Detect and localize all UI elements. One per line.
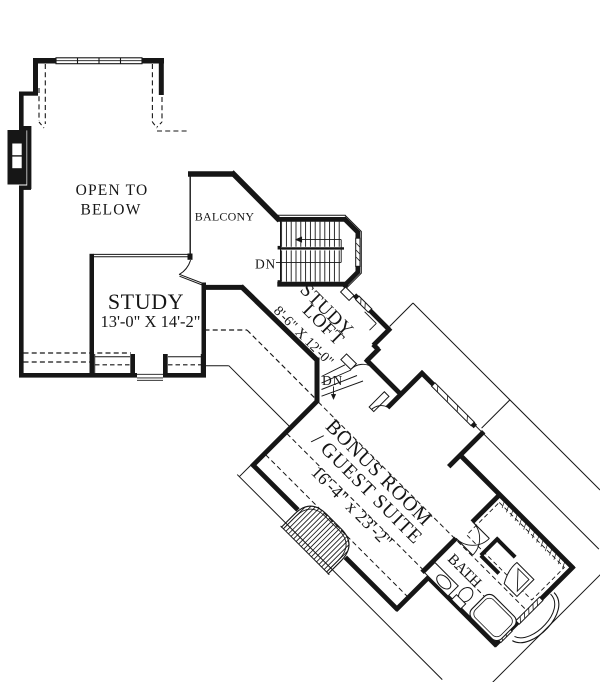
- svg-text:13'-0" X 14'-2": 13'-0" X 14'-2": [100, 312, 200, 331]
- svg-text:BELOW: BELOW: [80, 202, 141, 219]
- svg-text:BALCONY: BALCONY: [195, 210, 255, 224]
- svg-text:STUDY: STUDY: [108, 289, 184, 314]
- svg-text:OPEN TO: OPEN TO: [76, 182, 149, 199]
- svg-text:DN: DN: [255, 256, 276, 271]
